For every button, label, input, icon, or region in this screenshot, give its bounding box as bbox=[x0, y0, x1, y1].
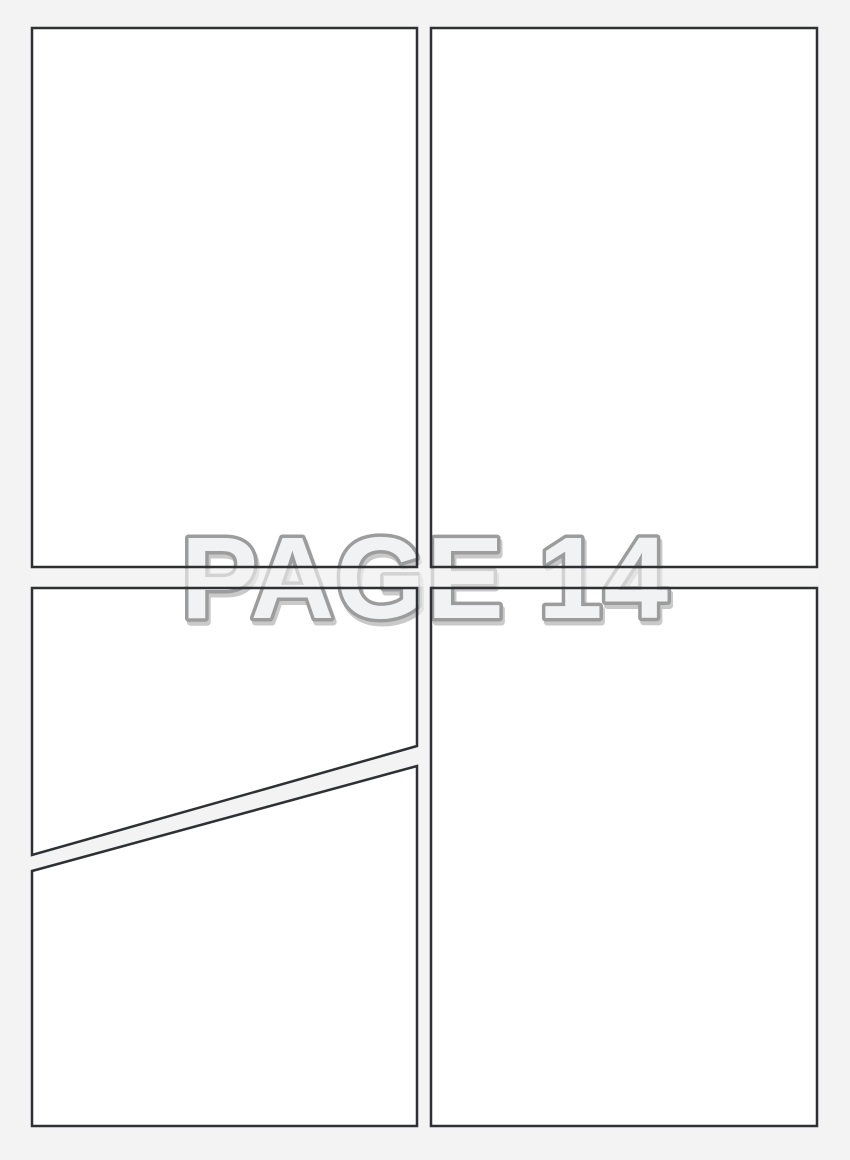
comic-page-template: PAGE 14 PAGE 14 bbox=[0, 0, 850, 1160]
panel-bottom-right-fill bbox=[431, 588, 817, 1126]
comic-page-canvas: PAGE 14 PAGE 14 bbox=[0, 0, 850, 1160]
panel-top-left-fill bbox=[32, 28, 417, 567]
panel-top-right-fill bbox=[431, 28, 817, 567]
vertical-gutter bbox=[420, 27, 430, 1127]
